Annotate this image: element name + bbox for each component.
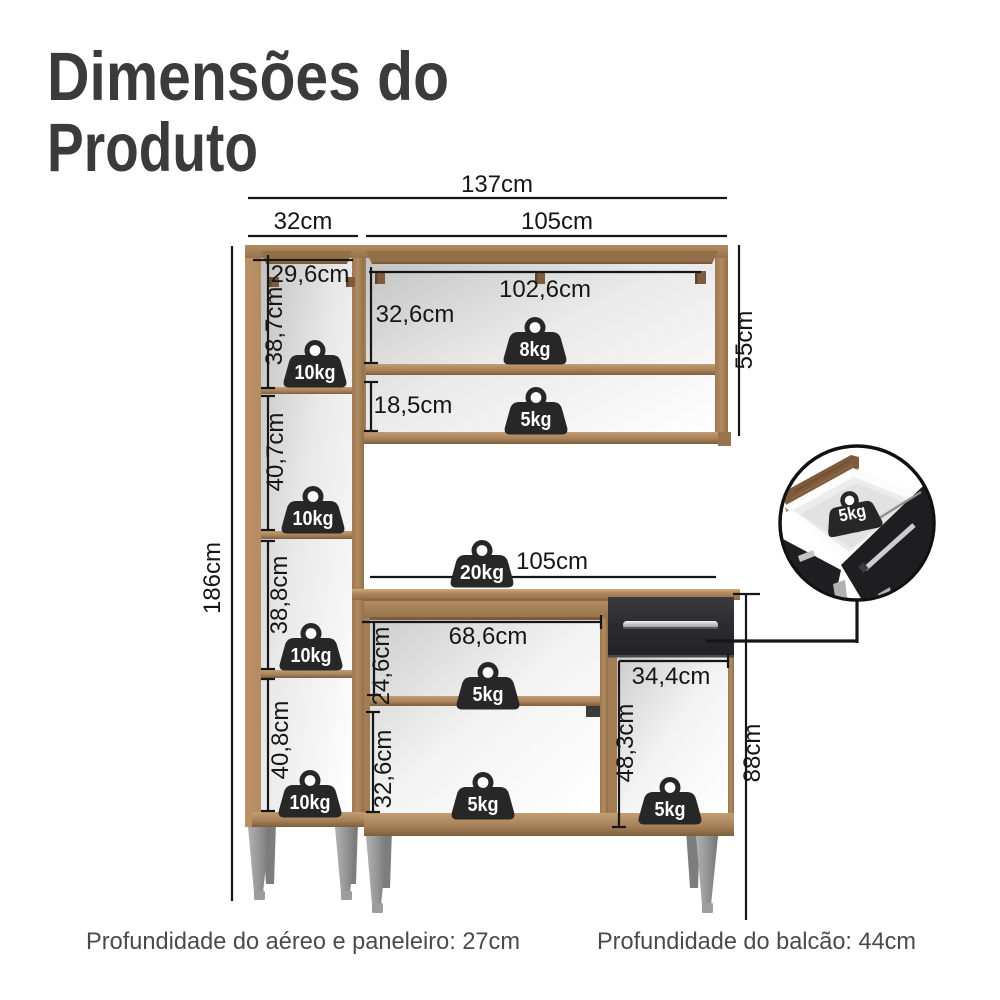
svg-text:48,3cm: 48,3cm — [612, 704, 639, 783]
svg-text:10kg: 10kg — [291, 645, 332, 667]
svg-text:32,6cm: 32,6cm — [376, 301, 455, 328]
svg-text:38,7cm: 38,7cm — [261, 287, 288, 366]
svg-text:18,5cm: 18,5cm — [374, 392, 453, 419]
svg-text:5kg: 5kg — [521, 409, 552, 431]
svg-text:5kg: 5kg — [468, 794, 499, 816]
svg-text:34,4cm: 34,4cm — [632, 663, 711, 690]
svg-text:Profundidade do aéreo e panele: Profundidade do aéreo e paneleiro: 27cm — [86, 928, 520, 955]
svg-text:137cm: 137cm — [461, 171, 533, 198]
svg-text:Profundidade do balcão: 44cm: Profundidade do balcão: 44cm — [597, 928, 916, 955]
svg-text:102,6cm: 102,6cm — [499, 276, 591, 303]
svg-text:29,6cm: 29,6cm — [271, 261, 350, 288]
svg-text:8kg: 8kg — [520, 339, 551, 361]
svg-text:Produto: Produto — [47, 109, 258, 186]
svg-text:40,8cm: 40,8cm — [267, 701, 294, 780]
svg-text:10kg: 10kg — [295, 362, 336, 384]
svg-text:68,6cm: 68,6cm — [449, 623, 528, 650]
svg-text:24,6cm: 24,6cm — [368, 627, 395, 706]
svg-text:105cm: 105cm — [521, 208, 593, 235]
svg-text:10kg: 10kg — [290, 792, 331, 814]
svg-text:38,8cm: 38,8cm — [266, 556, 293, 635]
svg-text:10kg: 10kg — [293, 508, 334, 530]
svg-text:Dimensões do: Dimensões do — [47, 38, 449, 115]
svg-text:32,6cm: 32,6cm — [370, 730, 397, 809]
svg-text:88cm: 88cm — [739, 724, 766, 783]
svg-text:40,7cm: 40,7cm — [262, 413, 289, 492]
svg-text:105cm: 105cm — [516, 548, 588, 575]
svg-text:186cm: 186cm — [199, 542, 226, 614]
svg-text:5kg: 5kg — [473, 684, 504, 706]
svg-text:55cm: 55cm — [731, 311, 758, 370]
svg-text:5kg: 5kg — [655, 799, 686, 821]
svg-text:20kg: 20kg — [460, 562, 504, 584]
svg-text:32cm: 32cm — [274, 208, 333, 235]
